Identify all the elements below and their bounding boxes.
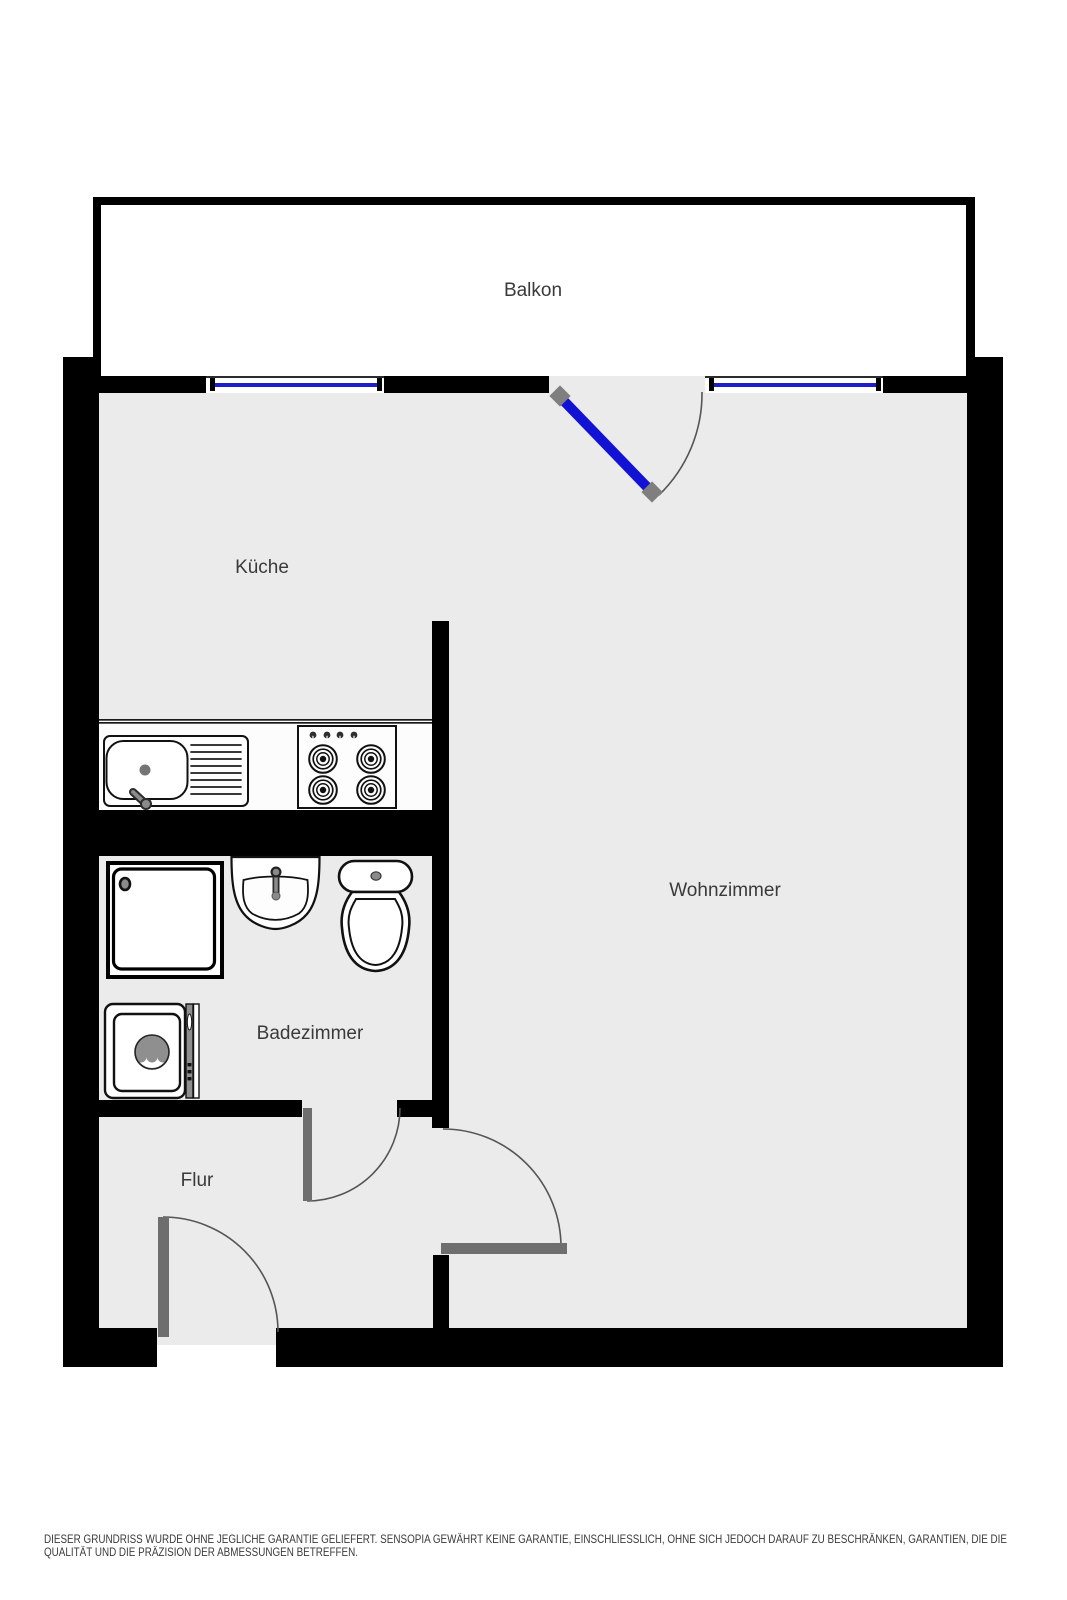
svg-text:DIESER GRUNDRISS WURDE OHNE JE: DIESER GRUNDRISS WURDE OHNE JEGLICHE GAR… [44,1532,1007,1546]
svg-text:Küche: Küche [235,557,289,578]
svg-text:QUALITÄT UND DIE PRÄZISION DER: QUALITÄT UND DIE PRÄZISION DER ABMESSUNG… [44,1545,358,1559]
svg-text:Flur: Flur [181,1170,214,1191]
svg-text:Badezimmer: Badezimmer [257,1023,364,1044]
svg-text:Balkon: Balkon [504,280,562,301]
svg-text:Wohnzimmer: Wohnzimmer [669,880,781,901]
